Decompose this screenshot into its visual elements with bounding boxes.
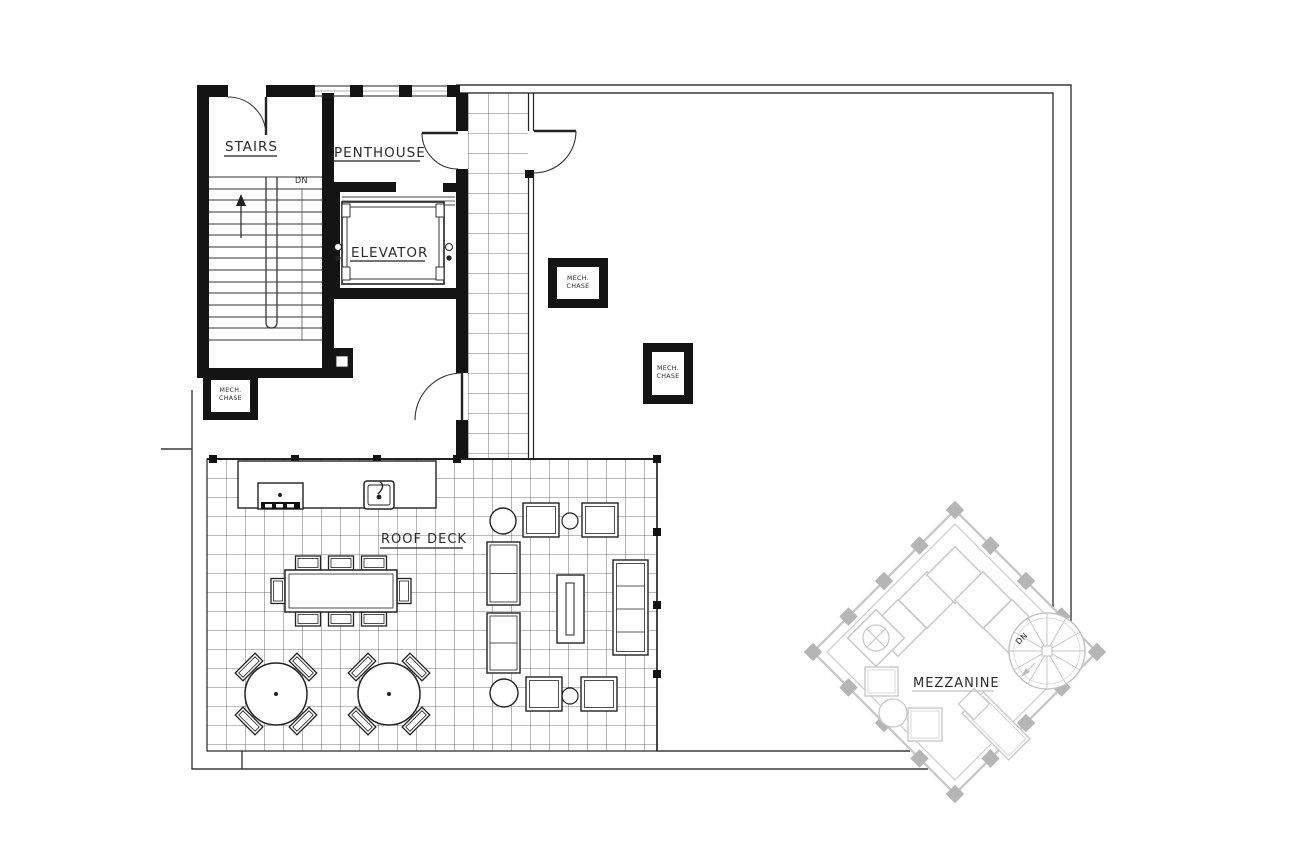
dining-table	[285, 570, 397, 612]
roof-deck-label: ROOF DECK	[381, 532, 467, 547]
round-table-2	[348, 653, 430, 735]
sink	[364, 481, 394, 509]
mech-chase-label-1: MECH.	[567, 275, 589, 282]
side-table	[562, 513, 578, 529]
walkway-tiles	[468, 93, 528, 459]
mezzanine: DN MEZZANINE	[804, 501, 1106, 803]
mech-chase-label-2: CHASE	[219, 395, 242, 402]
stairs-dn-label: DN	[295, 176, 308, 185]
mech-chase-label-1: MECH.	[657, 365, 679, 372]
wall-notch	[336, 356, 348, 367]
mezzanine-round-table	[879, 699, 907, 727]
penthouse-north-door	[422, 133, 458, 169]
floor-plan-drawing: DN STAIRS PENTHOUSE ELEVATOR	[0, 0, 1300, 866]
floor-plan-canvas: DN STAIRS PENTHOUSE ELEVATOR	[0, 0, 1300, 866]
mech-chase-stair: MECH. CHASE	[203, 372, 258, 420]
loveseat	[487, 542, 520, 605]
grill	[258, 483, 303, 509]
elevator-shaft: ELEVATOR	[330, 182, 468, 299]
planter	[490, 679, 518, 707]
side-table	[562, 688, 578, 704]
fire-pit	[557, 575, 584, 643]
mezzanine-table-2	[908, 708, 942, 741]
stair-walls	[197, 85, 353, 378]
sofa	[613, 560, 648, 655]
penthouse-label: PENTHOUSE	[334, 145, 426, 161]
mezzanine-table-1	[865, 667, 898, 696]
mech-chase-label-2: CHASE	[657, 373, 680, 380]
mezzanine-label: MEZZANINE	[913, 676, 1000, 691]
stairs-label: STAIRS	[225, 139, 278, 155]
door-jamb	[525, 170, 534, 178]
walkway-right-wall	[529, 93, 534, 459]
mech-chase-label-2: CHASE	[567, 283, 590, 290]
spiral-stair-post	[1042, 646, 1052, 656]
planter	[490, 508, 516, 534]
penthouse-south-door	[415, 373, 462, 420]
stairs-door	[228, 97, 266, 135]
spiral-stair: DN	[1009, 613, 1085, 689]
elevator-label: ELEVATOR	[351, 245, 428, 261]
walkway-east-door	[534, 131, 576, 173]
mech-chase-roof-2: MECH. CHASE	[643, 343, 693, 404]
mech-chase-label-1: MECH.	[220, 387, 242, 394]
mech-chase-roof-1: MECH. CHASE	[548, 258, 608, 308]
elevator-car	[342, 202, 444, 284]
loveseat	[487, 613, 520, 673]
round-table-1	[235, 653, 317, 735]
walkway	[456, 93, 534, 460]
